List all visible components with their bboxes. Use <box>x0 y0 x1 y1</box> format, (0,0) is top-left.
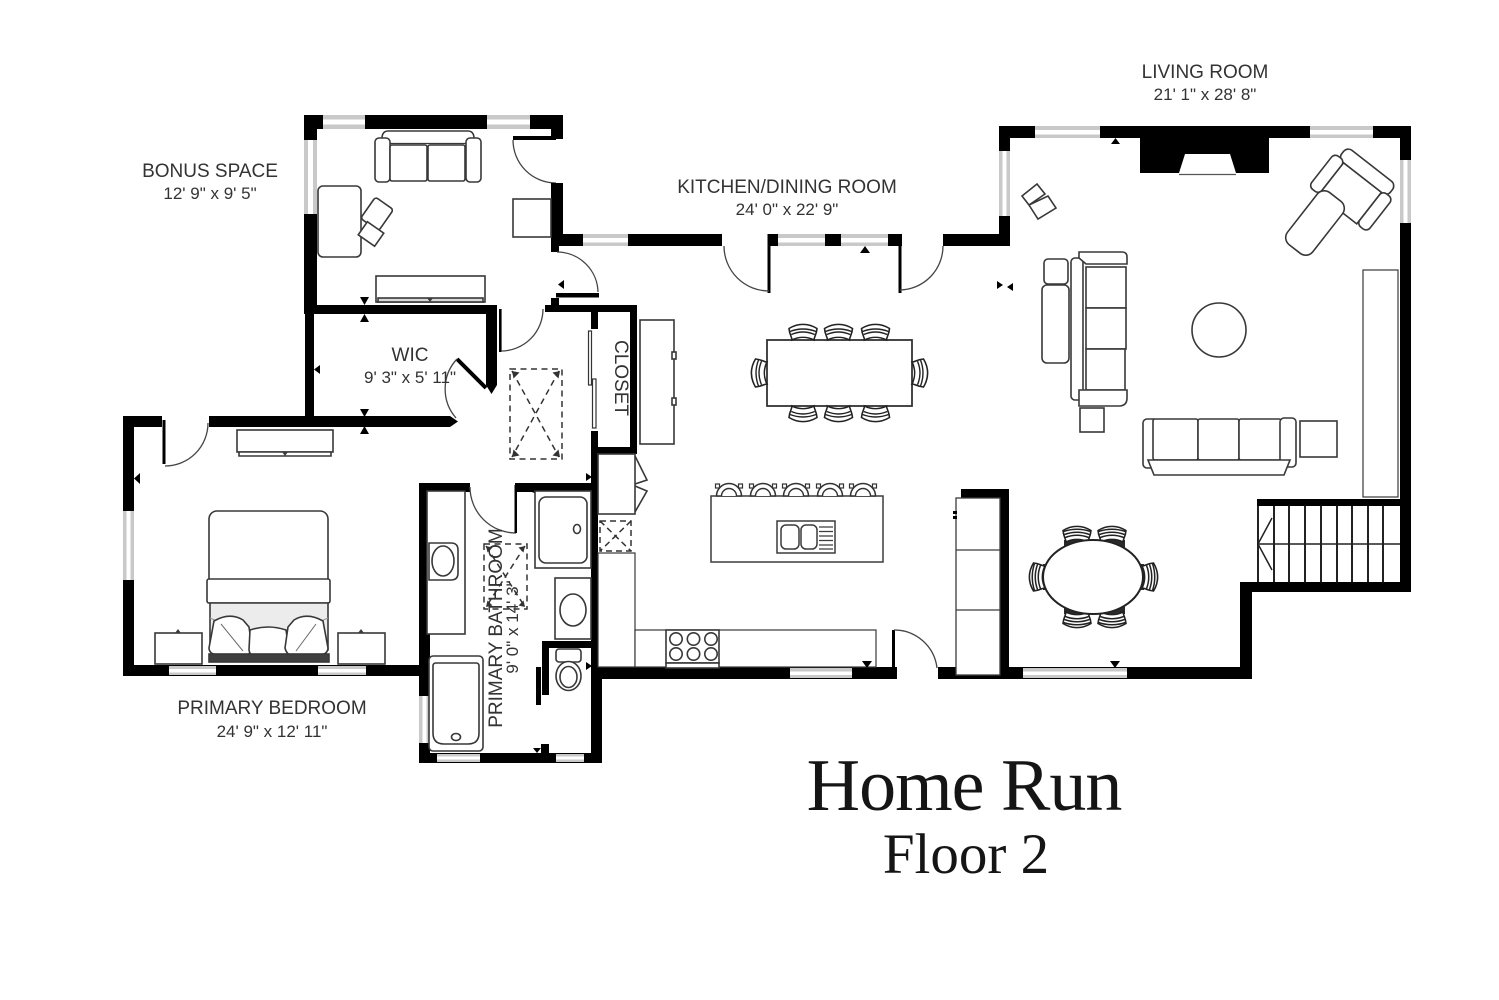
svg-text:WIC: WIC <box>392 345 429 366</box>
svg-text:9' 3" x 5' 11": 9' 3" x 5' 11" <box>364 368 456 387</box>
svg-text:CLOSET: CLOSET <box>610 340 631 416</box>
svg-text:KITCHEN/DINING ROOM: KITCHEN/DINING ROOM <box>677 177 897 198</box>
svg-text:Floor 2: Floor 2 <box>883 823 1049 886</box>
svg-text:24' 9" x 12' 11": 24' 9" x 12' 11" <box>217 722 328 741</box>
svg-text:Home Run: Home Run <box>807 745 1122 827</box>
svg-text:BONUS SPACE: BONUS SPACE <box>142 161 278 182</box>
svg-text:12' 9" x 9' 5": 12' 9" x 9' 5" <box>163 184 256 203</box>
svg-text:24' 0" x 22' 9": 24' 0" x 22' 9" <box>736 200 839 219</box>
svg-text:LIVING ROOM: LIVING ROOM <box>1142 62 1269 83</box>
svg-text:PRIMARY BEDROOM: PRIMARY BEDROOM <box>177 698 366 719</box>
svg-text:9' 0" x 14' 3": 9' 0" x 14' 3" <box>503 580 522 673</box>
svg-text:21' 1" x 28' 8": 21' 1" x 28' 8" <box>1154 85 1257 104</box>
